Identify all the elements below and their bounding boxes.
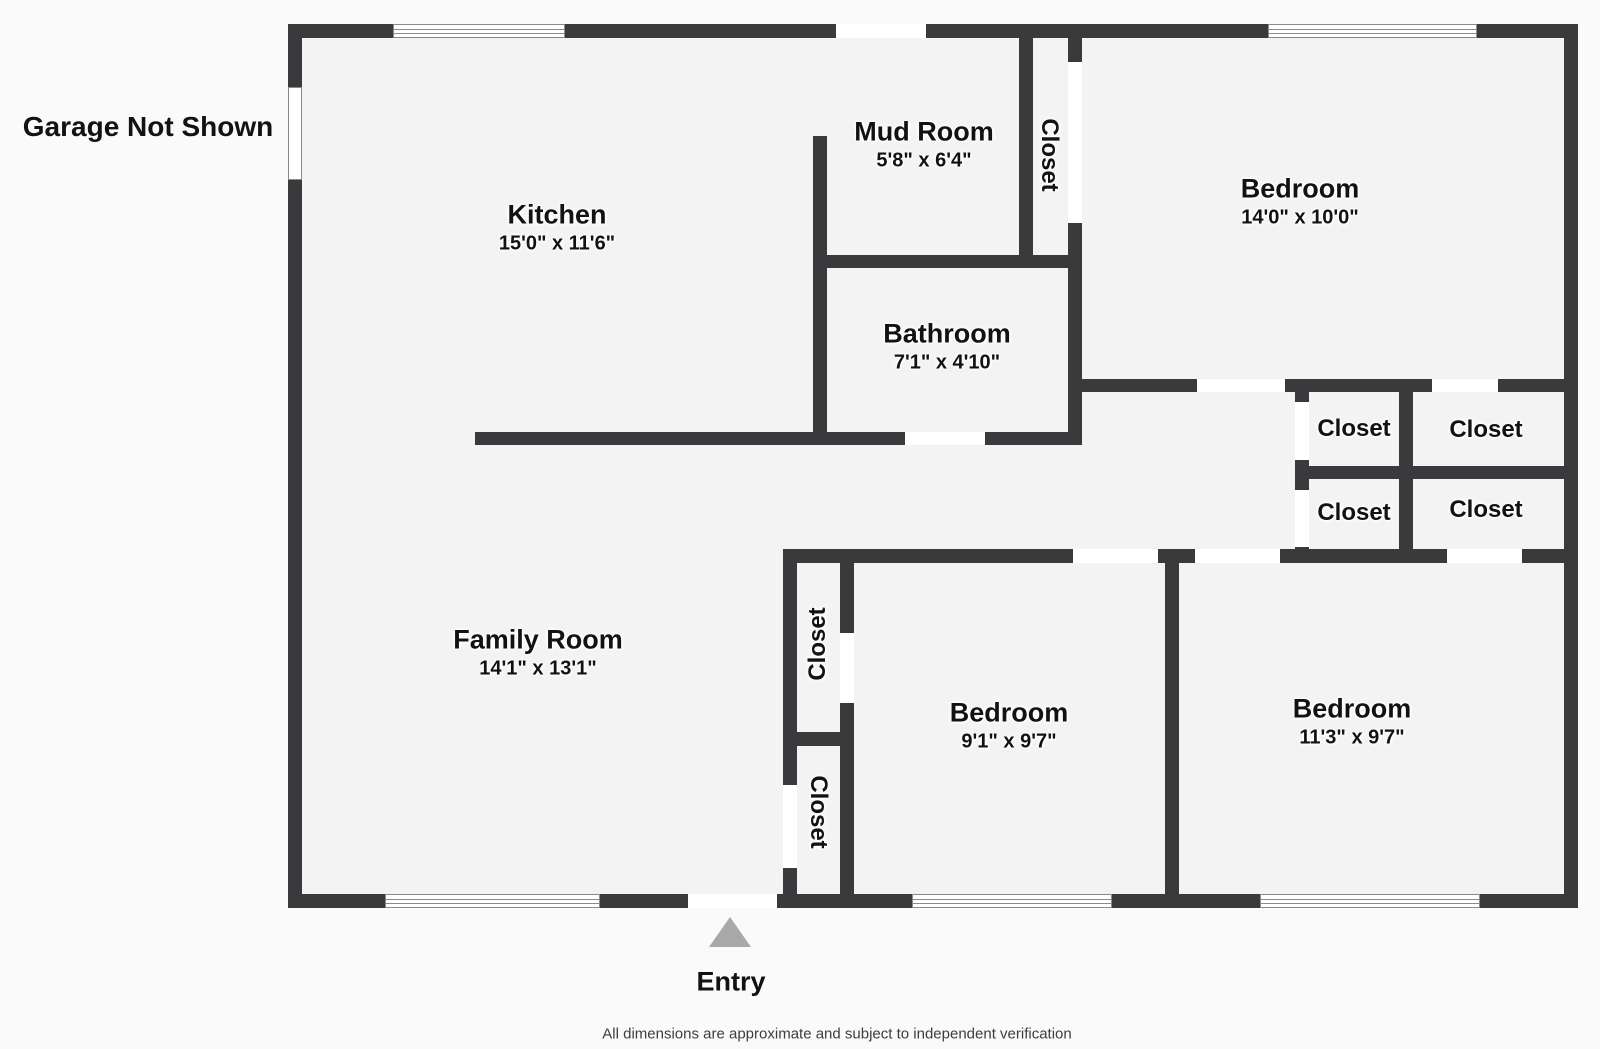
wall-segment — [840, 549, 854, 908]
door-opening — [1068, 62, 1082, 223]
room-label-bedroom-2: Bedroom9'1" x 9'7" — [950, 697, 1069, 754]
door-opening — [1073, 549, 1158, 563]
wall-segment — [1019, 38, 1033, 268]
room-label-closet-lower-right: Closet — [1449, 496, 1522, 524]
door-opening — [836, 24, 926, 38]
room-label-family-room: Family Room14'1" x 13'1" — [453, 624, 623, 681]
window — [912, 894, 1112, 908]
window — [385, 894, 600, 908]
window — [288, 87, 302, 180]
room-name: Closet — [804, 607, 832, 680]
door-opening — [1432, 379, 1498, 392]
disclaimer-text: All dimensions are approximate and subje… — [602, 1026, 1071, 1043]
wall-segment — [475, 432, 1082, 445]
room-name: Family Room — [453, 624, 623, 655]
room-name: Mud Room — [854, 116, 993, 147]
room-dimensions: 14'0" x 10'0" — [1241, 205, 1360, 231]
floorplan-canvas: Kitchen15'0" x 11'6"Mud Room5'8" x 6'4"B… — [0, 0, 1600, 1049]
room-name: Closet — [1449, 416, 1522, 444]
room-dimensions: 9'1" x 9'7" — [950, 729, 1069, 755]
room-label-closet-hall-top: Closet — [804, 607, 832, 680]
room-name: Bedroom — [1293, 693, 1412, 724]
room-label-bathroom: Bathroom7'1" x 4'10" — [883, 318, 1011, 375]
door-opening — [688, 894, 777, 908]
room-label-bedroom-1: Bedroom14'0" x 10'0" — [1241, 173, 1360, 230]
room-name: Closet — [1035, 118, 1063, 191]
room-dimensions: 11'3" x 9'7" — [1293, 725, 1412, 751]
door-opening — [1447, 549, 1522, 563]
floorplan-diagram: Kitchen15'0" x 11'6"Mud Room5'8" x 6'4"B… — [0, 0, 1600, 1049]
room-dimensions: 15'0" x 11'6" — [499, 231, 615, 257]
door-opening — [1295, 402, 1309, 460]
room-label-closet-upper-right: Closet — [1449, 416, 1522, 444]
entry-arrow-icon — [709, 917, 751, 947]
wall-segment — [1165, 549, 1179, 908]
wall-segment — [1068, 379, 1578, 392]
room-name: Closet — [1317, 415, 1390, 443]
room-label-closet-upper-left: Closet — [1317, 415, 1390, 443]
wall-segment — [813, 255, 1082, 268]
door-opening — [905, 432, 985, 445]
room-label-mud-room: Mud Room5'8" x 6'4" — [854, 116, 993, 173]
room-name: Bedroom — [950, 697, 1069, 728]
room-dimensions: 7'1" x 4'10" — [883, 350, 1011, 376]
door-opening — [1195, 549, 1280, 563]
wall-segment — [1399, 379, 1413, 562]
door-opening — [1295, 490, 1309, 547]
wall-segment — [813, 136, 827, 445]
room-dimensions: 14'1" x 13'1" — [453, 656, 623, 682]
room-label-kitchen: Kitchen15'0" x 11'6" — [499, 199, 615, 256]
entry-label: Entry — [696, 967, 765, 998]
door-opening — [783, 785, 797, 868]
room-name: Bathroom — [883, 318, 1011, 349]
wall-segment — [783, 732, 854, 746]
wall-segment — [1295, 466, 1578, 479]
room-label-closet-hall-bottom: Closet — [804, 775, 832, 848]
room-name: Closet — [1317, 499, 1390, 527]
window — [1260, 894, 1480, 908]
window — [1268, 24, 1477, 38]
room-name: Closet — [804, 775, 832, 848]
wall-segment — [1068, 223, 1082, 445]
door-opening — [1197, 379, 1285, 392]
room-label-bedroom-3: Bedroom11'3" x 9'7" — [1293, 693, 1412, 750]
window — [393, 24, 565, 38]
door-opening — [840, 633, 854, 703]
garage-note: Garage Not Shown — [23, 111, 273, 143]
room-name: Kitchen — [499, 199, 615, 230]
room-label-closet-lower-left: Closet — [1317, 499, 1390, 527]
room-name: Closet — [1449, 496, 1522, 524]
room-name: Bedroom — [1241, 173, 1360, 204]
room-label-closet-mudroom: Closet — [1035, 118, 1063, 191]
room-dimensions: 5'8" x 6'4" — [854, 148, 993, 174]
